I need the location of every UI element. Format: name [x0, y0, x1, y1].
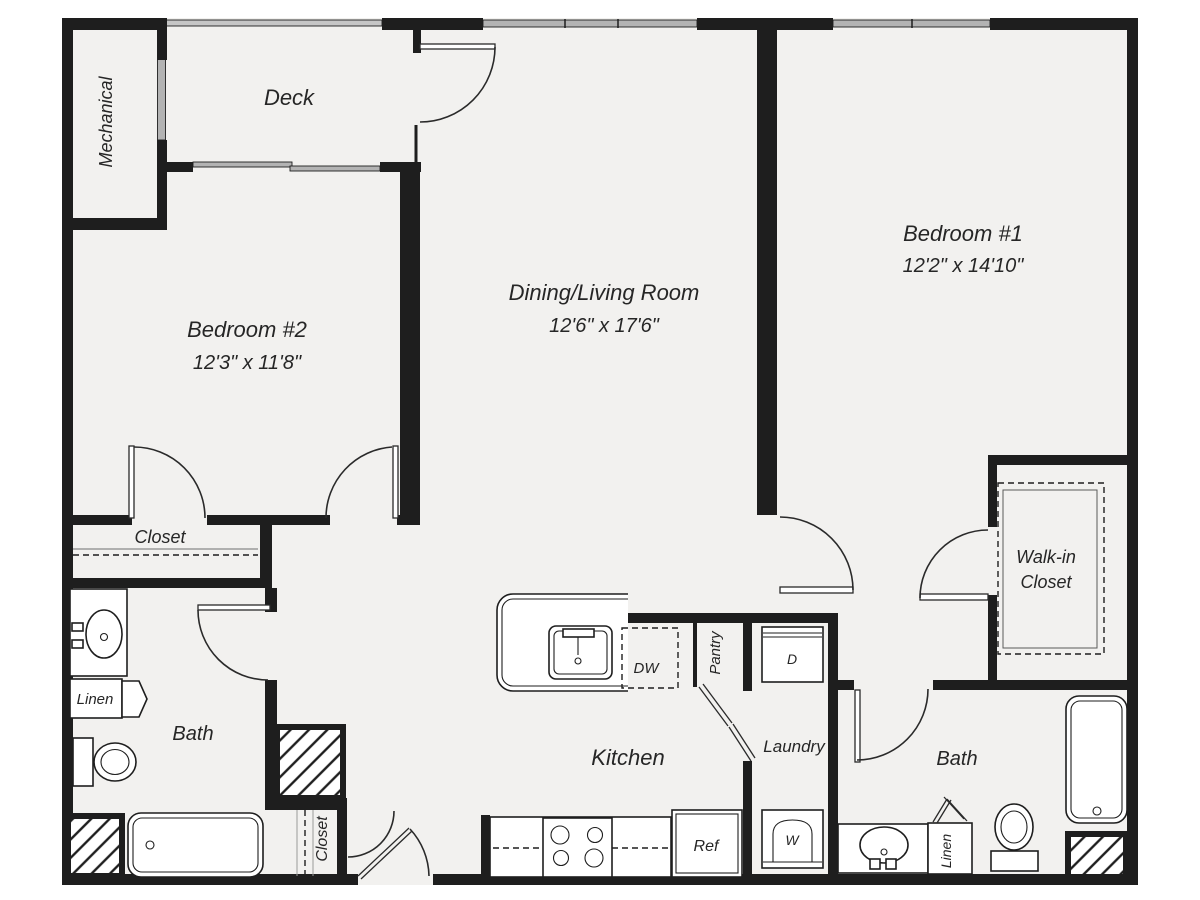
kitchen-faucet: [563, 629, 594, 637]
bath-right-door-leaf: [855, 690, 860, 762]
bathtub: [128, 813, 263, 877]
wall-exterior-top: [990, 18, 1138, 30]
wall-bedroom2-south: [397, 515, 420, 525]
wall-mechanical-right: [157, 140, 167, 222]
wall-bedroom2-south: [207, 515, 330, 525]
wall-bedroom2-closet-right: [260, 524, 272, 584]
label-hall-closet: Closet: [314, 816, 331, 862]
wall-exterior-left: [62, 18, 73, 885]
label-deck: Deck: [264, 85, 315, 110]
wall-laundry-left: [743, 613, 752, 691]
wall-deck-bottom: [167, 162, 193, 172]
bedroom1-door-leaf: [780, 587, 853, 593]
label-walkin-line1: Walk-in: [1016, 547, 1076, 567]
label-living: Dining/Living Room: [509, 280, 700, 305]
label-walkin-line2: Closet: [1020, 572, 1072, 592]
deck-door-leaf: [420, 44, 495, 49]
mechanical-window: [158, 58, 166, 140]
bathtub: [1066, 696, 1127, 823]
wall-bedroom2-south: [73, 515, 132, 525]
label-bedroom2: Bedroom #2: [187, 317, 307, 342]
faucet-handle: [870, 859, 880, 869]
wall-kitchen-top: [623, 613, 838, 623]
label-bath-right: Bath: [936, 748, 977, 770]
bedroom2-door-leaf: [129, 446, 134, 518]
wall-laundry-right: [828, 613, 838, 885]
wall-exterior-right: [1127, 18, 1138, 885]
faucet-handle: [72, 623, 83, 631]
shaft-hatch: [277, 727, 343, 798]
wall-laundry-left: [743, 761, 752, 885]
floorplan-page: Deck Mechanical Bedroom #2 12'3" x 11'8"…: [0, 0, 1200, 900]
wall-bedroom2-closet-bottom: [62, 578, 272, 588]
wall-bath-right-top: [933, 680, 1130, 690]
label-washer: W: [785, 832, 800, 848]
label-living-dims: 12'6" x 17'6": [549, 315, 660, 337]
wall-kitchen-counter-stub: [481, 815, 490, 885]
faucet-handle: [886, 859, 896, 869]
wall-pantry-left: [693, 623, 697, 687]
bedroom2-door2-leaf: [393, 446, 398, 518]
sink-basin: [860, 827, 908, 863]
wall-exterior-top: [62, 18, 157, 30]
wall-walkin-top: [988, 455, 1130, 465]
walkin-door-leaf: [920, 594, 988, 600]
label-linen-left: Linen: [77, 691, 114, 708]
floorplan-drawing: Deck Mechanical Bedroom #2 12'3" x 11'8"…: [0, 0, 1200, 900]
label-dryer: D: [787, 651, 797, 667]
wall-mechanical-bottom: [62, 218, 167, 230]
label-bedroom1-dims: 12'2" x 14'10": [903, 255, 1025, 277]
deck-railing: [157, 20, 382, 26]
shaft-hatch: [1068, 834, 1126, 877]
label-pantry: Pantry: [707, 630, 724, 675]
wall-hall-closet-right: [337, 806, 347, 877]
label-laundry: Laundry: [763, 737, 826, 756]
wall-bath-right-top: [838, 680, 854, 690]
label-linen-right: Linen: [938, 834, 954, 868]
label-bedroom2-closet: Closet: [134, 527, 186, 547]
wall-bedroom2-living: [400, 162, 420, 524]
wall-exterior-top: [382, 18, 483, 30]
label-mechanical: Mechanical: [96, 75, 116, 167]
wall-walkin-left: [988, 465, 997, 527]
toilet-tank: [991, 851, 1038, 871]
toilet-bowl: [94, 743, 136, 781]
shaft-hatch: [68, 816, 122, 876]
wall-mechanical-right: [157, 18, 167, 60]
wall-deck-right-thin: [415, 125, 418, 166]
bath-left-door-leaf: [198, 605, 270, 610]
label-bedroom1: Bedroom #1: [903, 221, 1023, 246]
label-kitchen: Kitchen: [591, 745, 664, 770]
toilet-tank: [73, 738, 93, 786]
deck-slider-panel: [290, 166, 380, 171]
label-bath-left: Bath: [172, 723, 213, 745]
label-dishwasher: DW: [634, 660, 661, 677]
wall-walkin-left: [988, 595, 997, 690]
label-refrigerator: Ref: [694, 838, 720, 855]
label-bedroom2-dims: 12'3" x 11'8": [193, 352, 302, 374]
deck-slider-panel: [193, 162, 292, 167]
wall-living-bedroom1: [757, 25, 777, 515]
faucet-handle: [72, 640, 83, 648]
living-window: [483, 20, 697, 27]
stove: [543, 818, 612, 877]
